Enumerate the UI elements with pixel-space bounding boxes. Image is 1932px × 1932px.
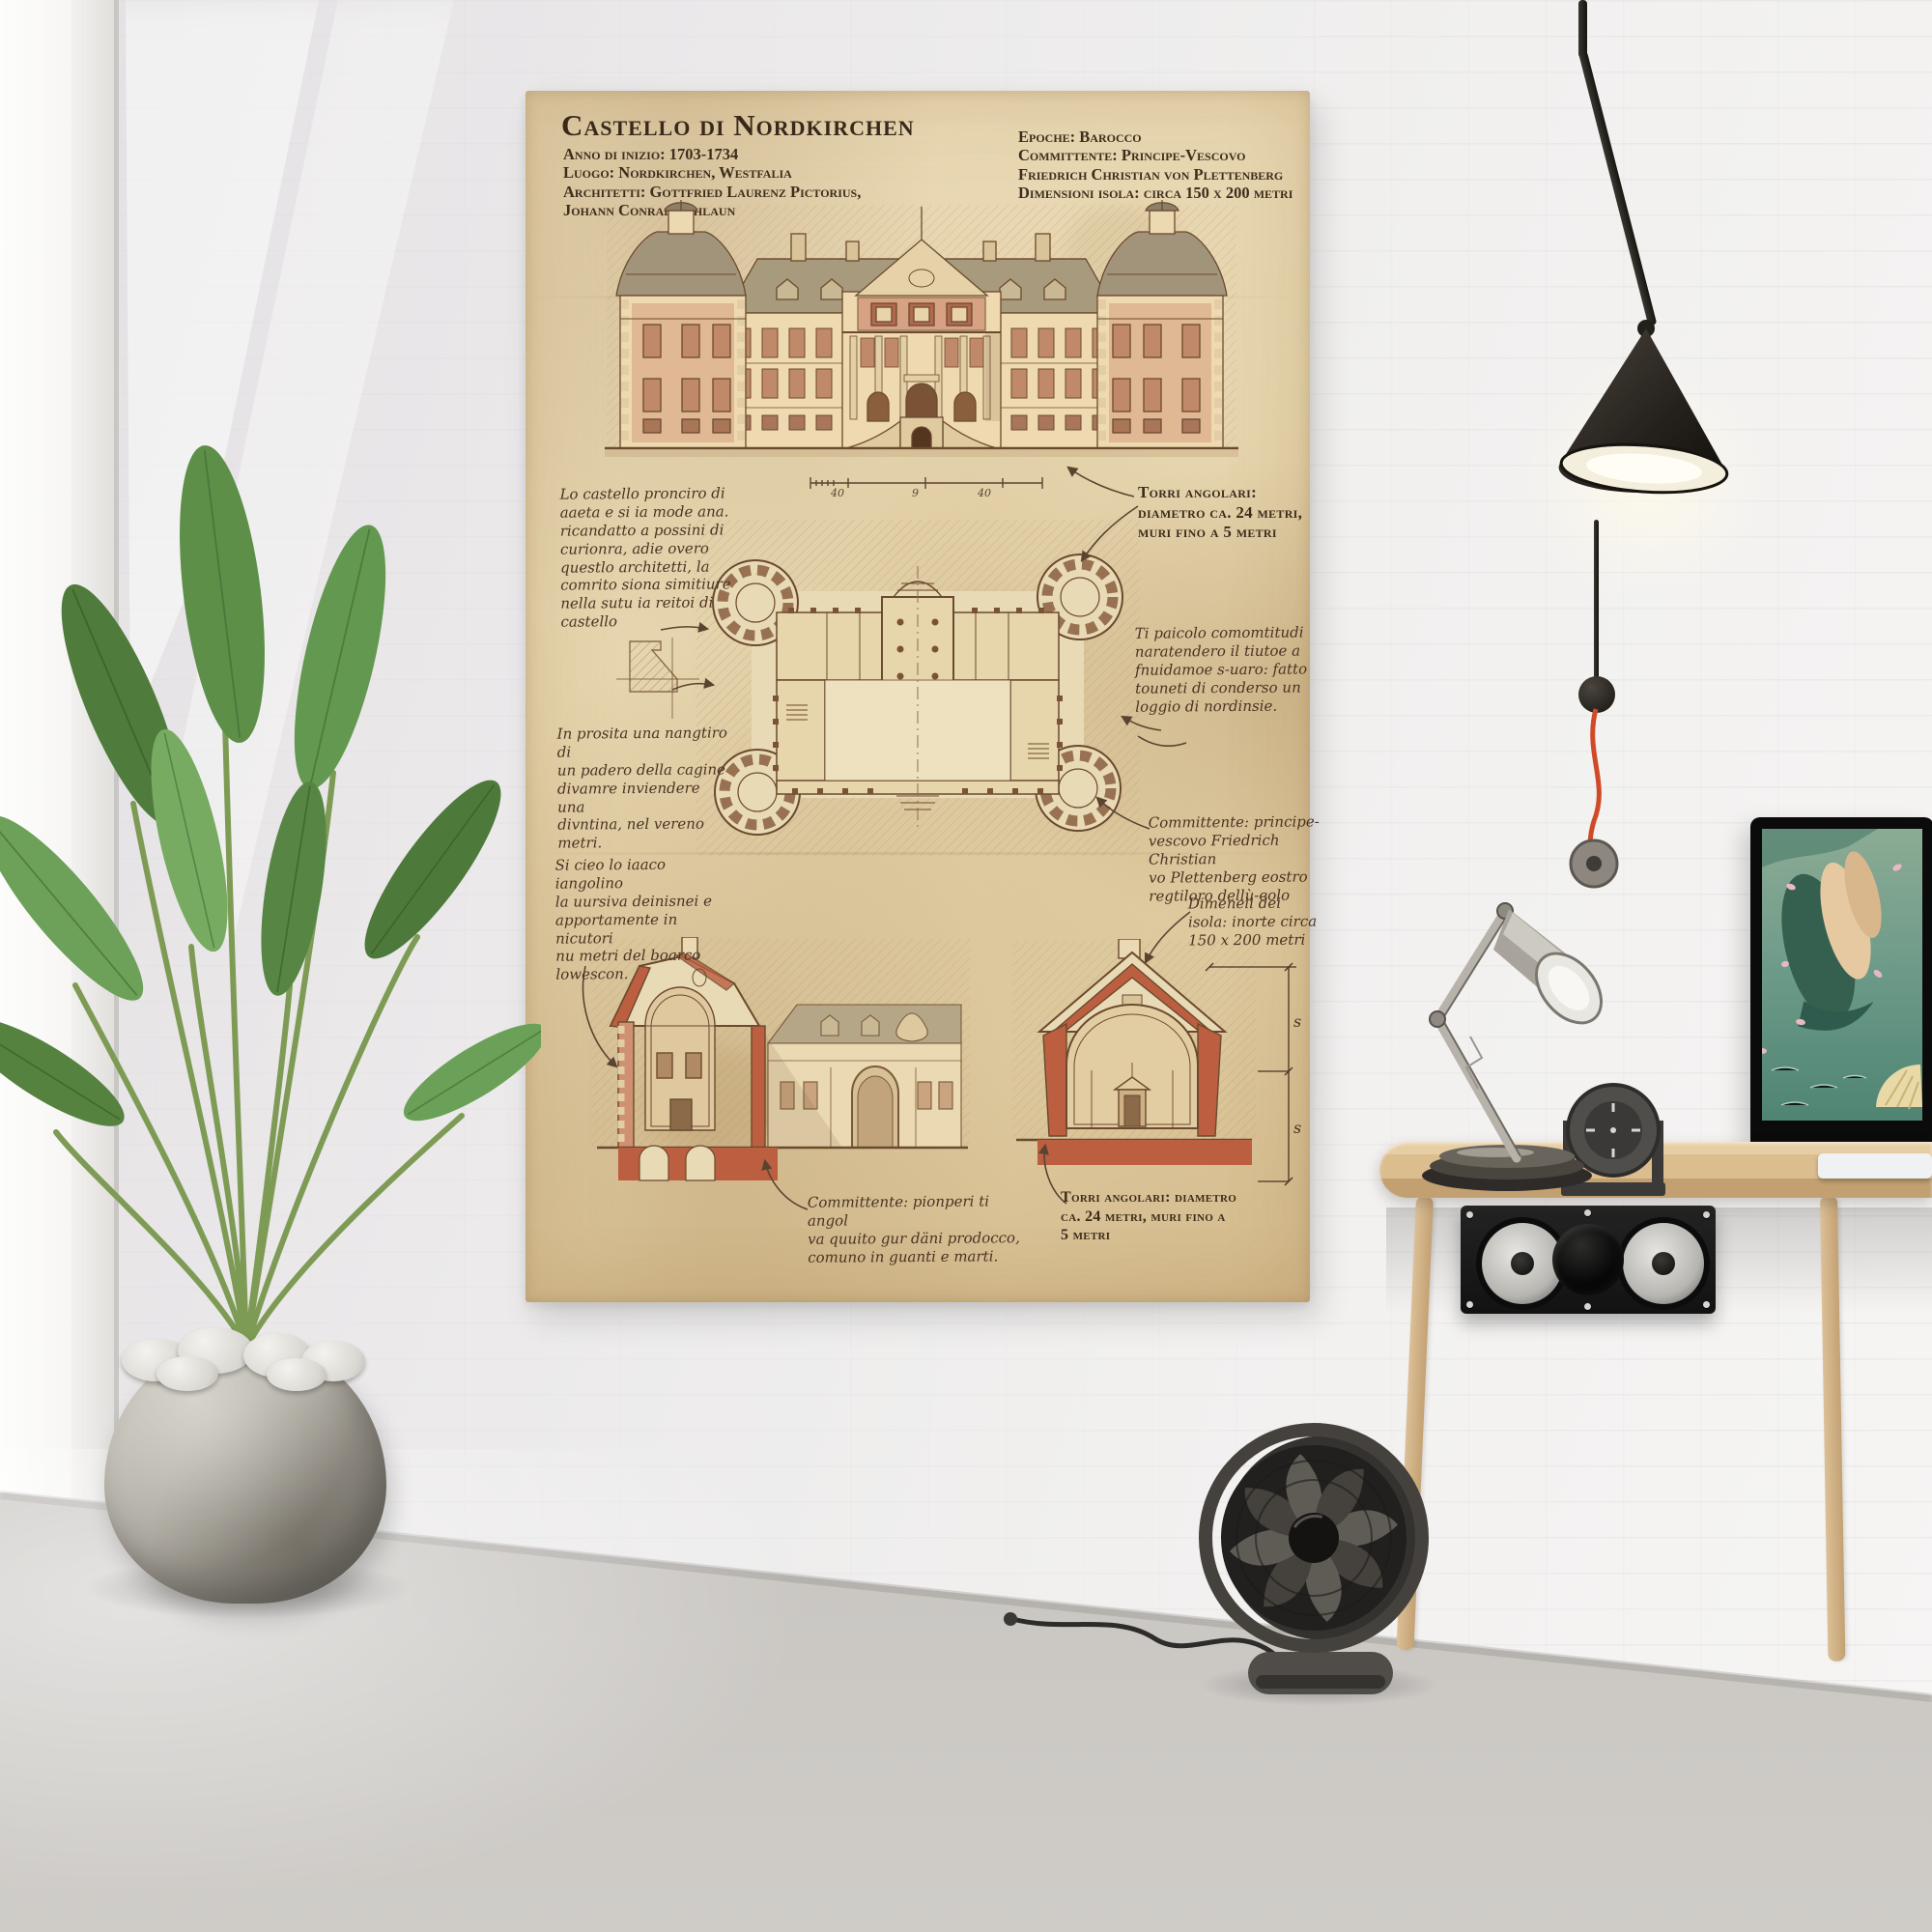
note-torri-angolari-bottom: Torri angolari: diametro ca. 24 metri, m… [1061,1188,1268,1245]
under-desk-speaker [1461,1206,1716,1314]
monitor-screen-painting [1762,829,1922,1121]
leaf-blades [0,440,541,1143]
wall-lamp-red-cable [1546,697,1662,891]
speaker-woofer [1617,1217,1710,1310]
speaker-center-driver [1552,1224,1624,1295]
wall-lamp-cone-shade [1536,319,1748,522]
wall-lamp-stem [1594,520,1599,684]
potted-plant-leaves [0,367,541,1449]
note-right-mid: Ti paicolo comomtitudi naratendero il ti… [1135,623,1329,716]
note-left-mid: In prosita una nangtiro di un padero del… [557,724,730,852]
room-photo: Castello di Nordkirchen Anno di inizio: … [0,0,1932,1932]
note-torri-angolari-top: Torri angolari: diametro ca. 24 metri, m… [1138,483,1350,543]
note-left-bottom: Si cieo lo iaaco iangolino la uursiva de… [555,855,738,984]
note-dimensioni-right: Dimeneii dei isola: inorte circa 150 x 2… [1188,894,1329,950]
wall-lamp-cord [1578,0,1587,58]
note-committente-right: Committente: principe- vescovo Friedrich… [1149,812,1329,905]
desk-lamp [1381,884,1690,1207]
note-left-top: Lo castello pronciro di aaeta e si ia mo… [559,484,736,631]
keyboard [1818,1153,1932,1179]
monitor [1750,817,1932,1144]
floor-fan [1180,1393,1451,1702]
note-committente-bottom: Committente: pionperi ti angol va quuito… [808,1192,1026,1266]
architecture-poster: Castello di Nordkirchen Anno di inizio: … [526,91,1310,1302]
pot-pebbles [122,1321,373,1389]
